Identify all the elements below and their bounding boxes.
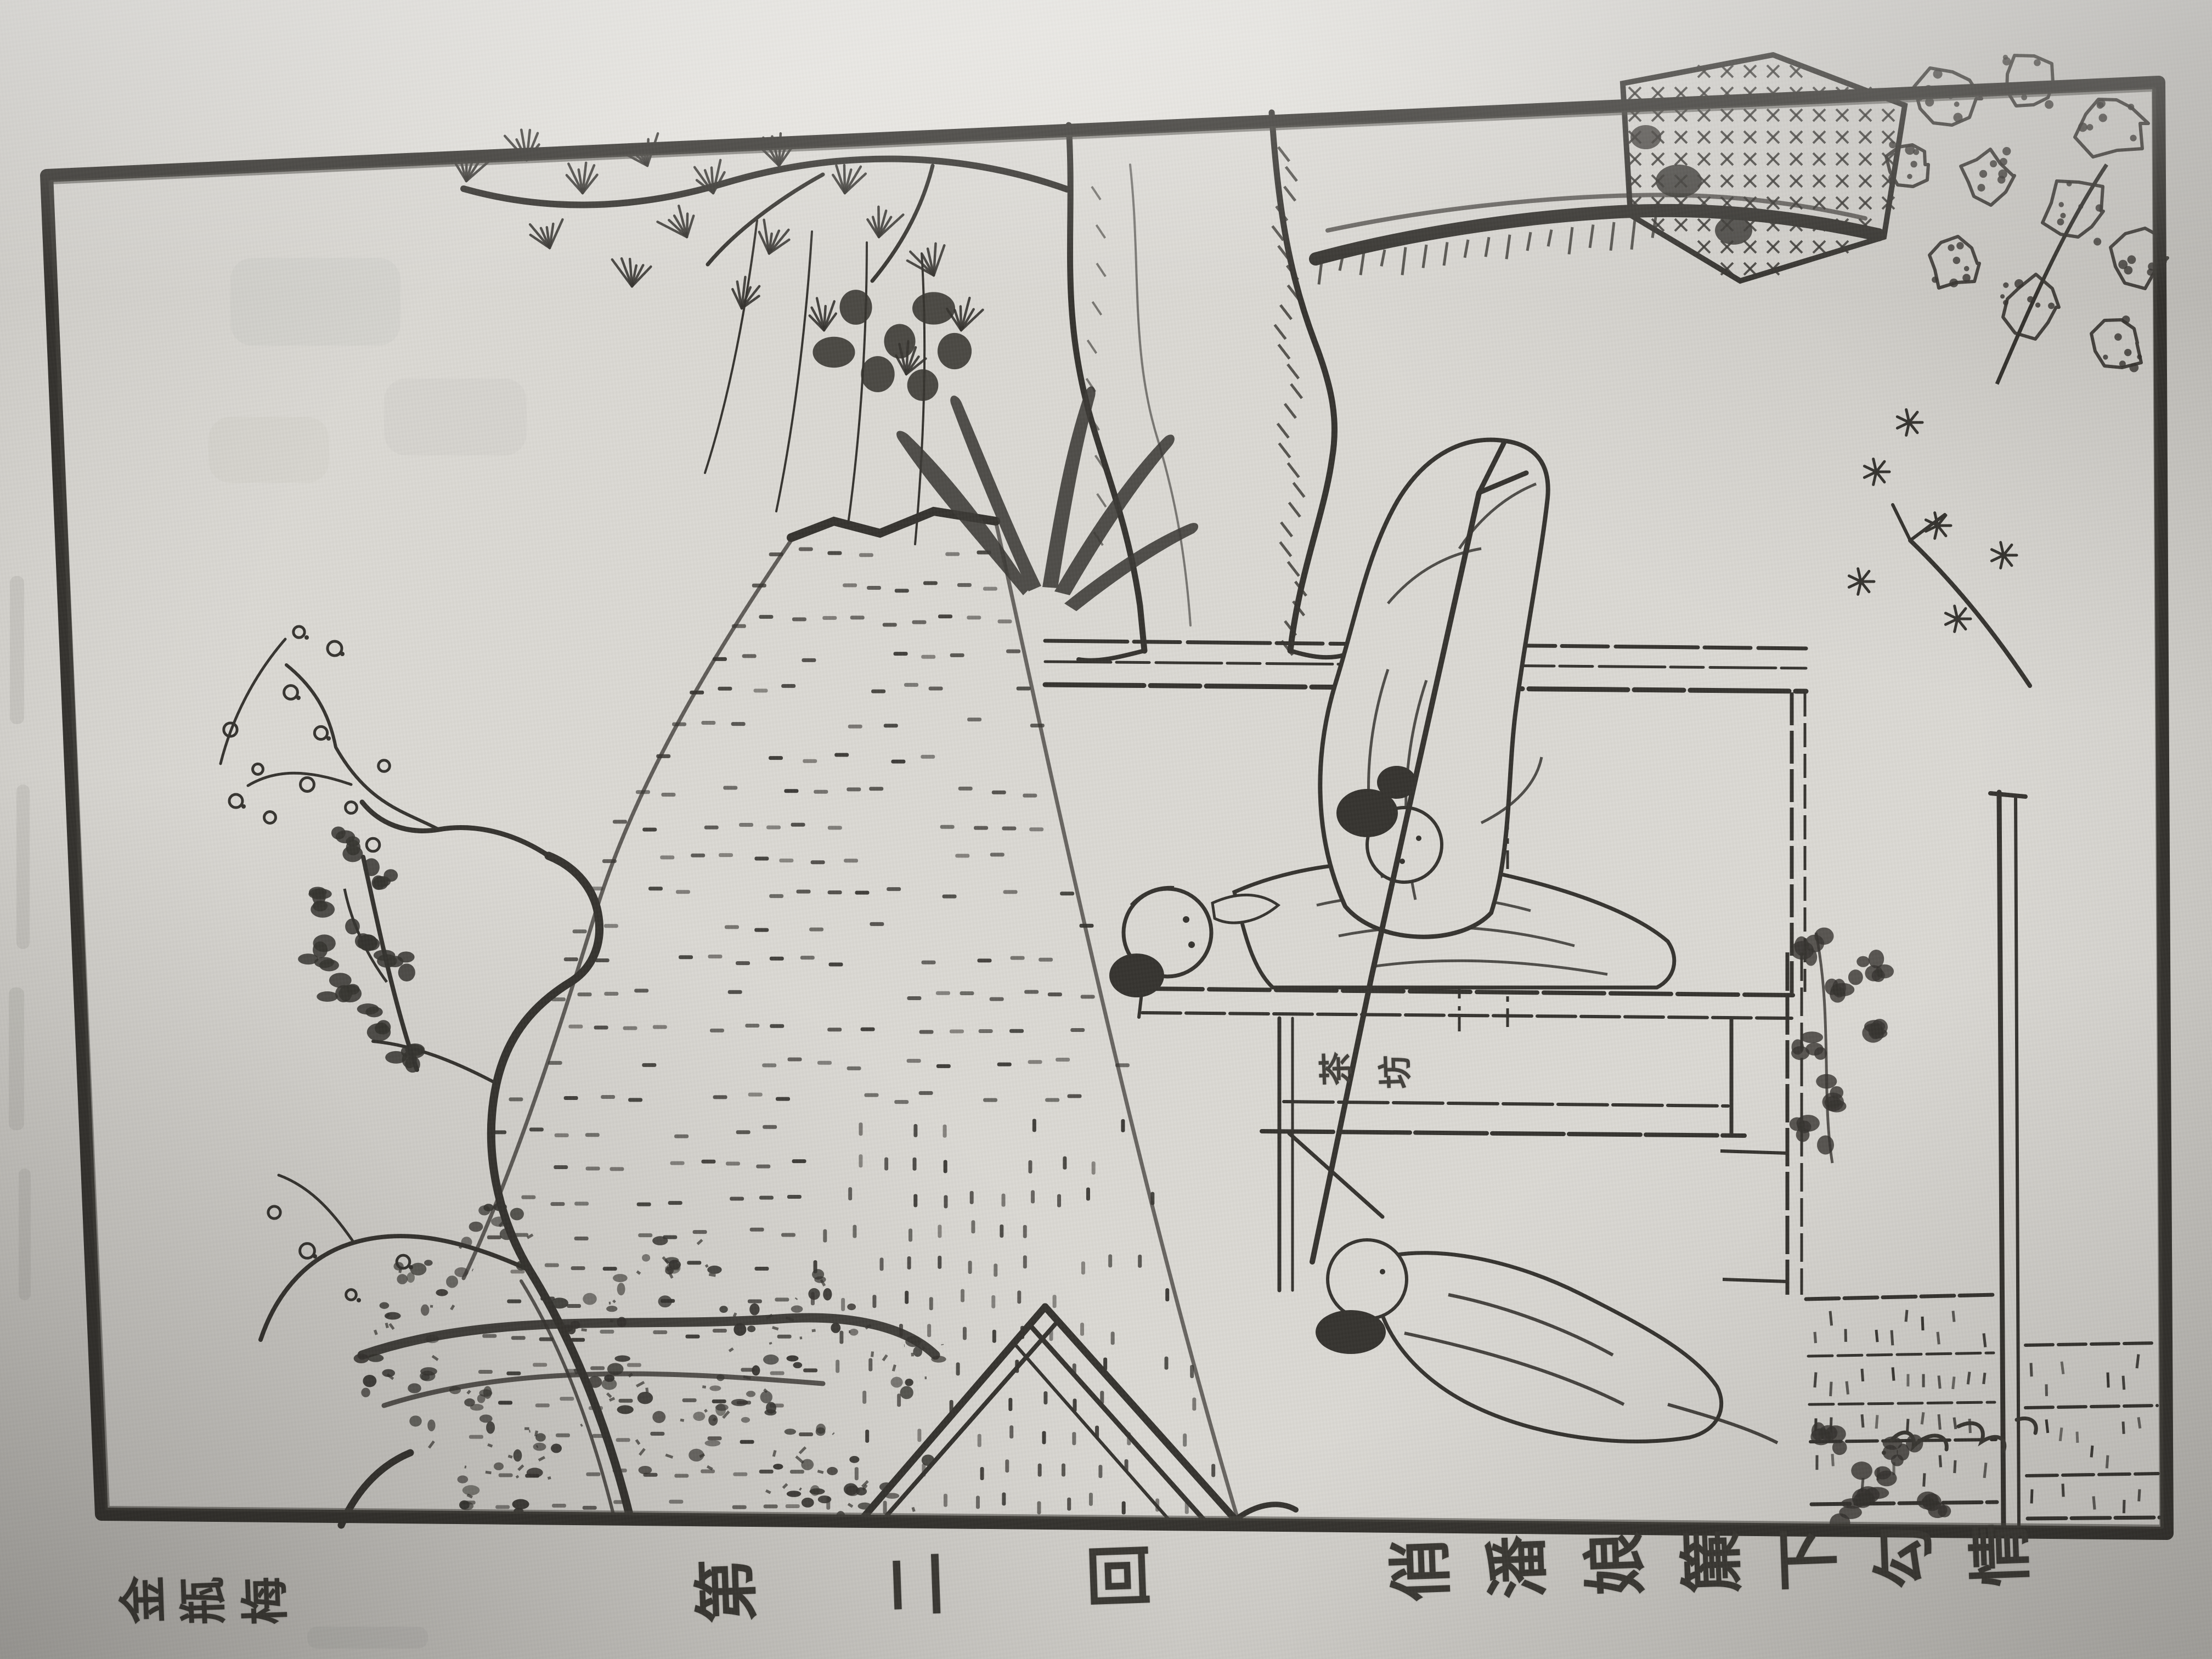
caption-char: 俏 (1389, 1537, 1455, 1603)
bowing-figure-cap (1316, 1310, 1386, 1354)
caption-char: 娘 (1583, 1531, 1649, 1596)
caption-char: 下 (1776, 1526, 1842, 1592)
bowing-figure-head (1328, 1240, 1407, 1319)
caption-char: 金 (119, 1575, 168, 1624)
caption-char: 第 (693, 1558, 760, 1624)
caption-char: 潘 (1486, 1534, 1551, 1600)
caption-char: 二 (884, 1551, 951, 1618)
caption-char: 簾 (1680, 1528, 1746, 1594)
caption-char: 勾 (1872, 1524, 1938, 1590)
caption-char: 瓶 (178, 1576, 228, 1626)
woodcut-illustration (0, 0, 2212, 1659)
caption-char: 情 (1968, 1522, 2034, 1588)
caption-char: 茶 (1319, 1051, 1354, 1086)
book-page-photo: 金 瓶 梅 第 二 回 俏 潘 娘 簾 下 勾 情 茶 坊 (0, 0, 2212, 1659)
caption-char: 回 (1087, 1542, 1154, 1609)
caption-char: 坊 (1378, 1054, 1413, 1090)
caption-char: 梅 (240, 1576, 290, 1626)
